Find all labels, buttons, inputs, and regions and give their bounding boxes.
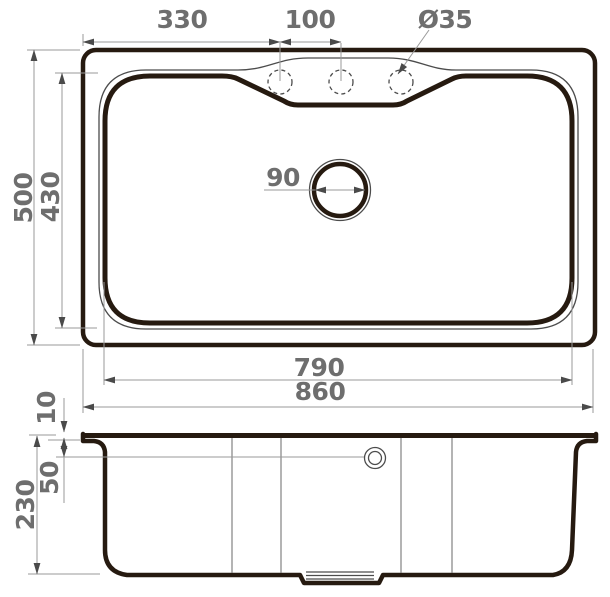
bowl-inner-edge <box>105 76 572 323</box>
top-view: 330 100 Ø35 500 430 90 790 860 <box>9 5 595 413</box>
sink-technical-drawing: 330 100 Ø35 500 430 90 790 860 <box>0 0 610 597</box>
faucet-hole-right <box>389 70 413 94</box>
label-500: 500 <box>9 173 38 224</box>
overflow-hole-inner <box>369 452 382 465</box>
label-hole-diameter: Ø35 <box>418 5 473 34</box>
overflow-hole-outer <box>365 448 386 469</box>
label-330: 330 <box>157 5 208 34</box>
sink-outer-edge <box>83 50 595 345</box>
section-view: 10 50 230 <box>11 391 597 583</box>
label-860: 860 <box>295 377 346 406</box>
label-430: 430 <box>36 172 65 223</box>
deck-thin-outline <box>99 58 578 329</box>
drawing-svg: 330 100 Ø35 500 430 90 790 860 <box>0 0 610 597</box>
label-230: 230 <box>11 480 40 531</box>
section-bowl-profile <box>83 434 596 583</box>
label-90: 90 <box>266 163 300 192</box>
label-10: 10 <box>32 391 61 425</box>
label-100: 100 <box>285 5 336 34</box>
